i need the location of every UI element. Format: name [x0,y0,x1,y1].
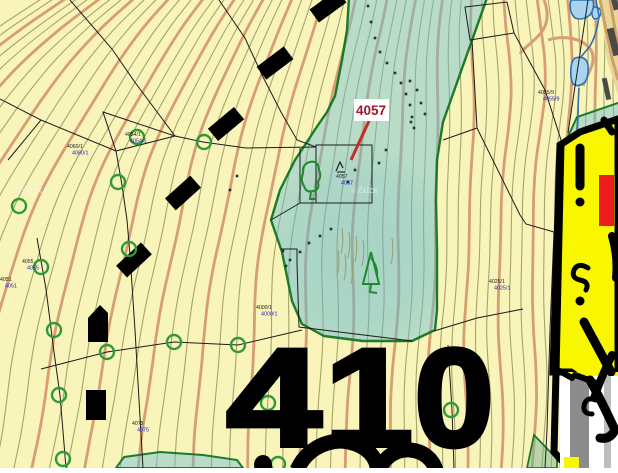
svg-text:4055/9: 4055/9 [543,97,560,103]
svg-text:4025/1: 4025/1 [494,286,511,292]
svg-text:© ČÚZK: © ČÚZK [15,186,43,195]
svg-text:4055/9: 4055/9 [538,90,554,96]
svg-text:4051: 4051 [0,277,12,283]
svg-text:4000/1: 4000/1 [256,305,272,311]
svg-text:4057: 4057 [336,174,348,180]
svg-text:4075: 4075 [137,428,149,434]
svg-text:0: 0 [414,320,494,468]
svg-text:4075: 4075 [132,421,144,427]
svg-text:4060/1: 4060/1 [72,151,89,157]
svg-text:4060/1: 4060/1 [67,144,83,150]
svg-text:4051: 4051 [5,284,17,290]
svg-text:4025/1: 4025/1 [489,279,505,285]
svg-text:4055: 4055 [27,266,39,272]
svg-text:4057: 4057 [356,103,386,118]
svg-text:4000/1: 4000/1 [261,312,278,318]
svg-text:© ČÚZK: © ČÚZK [351,186,379,195]
svg-text:4054/1: 4054/1 [125,132,141,138]
svg-text:4054/1: 4054/1 [130,139,147,145]
svg-text:4055: 4055 [22,259,34,265]
